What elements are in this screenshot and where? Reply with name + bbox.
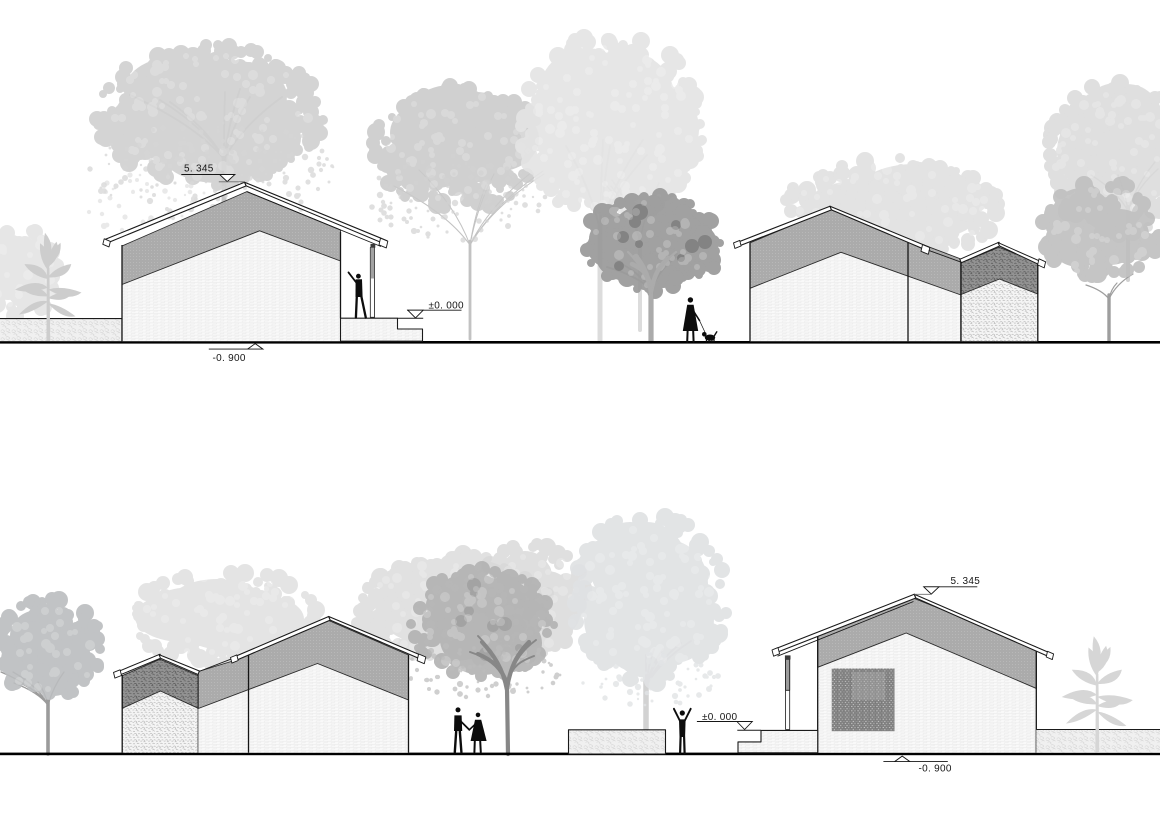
svg-text:-0. 900: -0. 900 <box>213 353 246 364</box>
svg-text:-0. 900: -0. 900 <box>919 763 952 774</box>
svg-text:±0. 000: ±0. 000 <box>702 712 738 723</box>
svg-text:5. 345: 5. 345 <box>184 164 214 175</box>
svg-text:5. 345: 5. 345 <box>951 576 981 587</box>
svg-text:±0. 000: ±0. 000 <box>429 300 465 311</box>
